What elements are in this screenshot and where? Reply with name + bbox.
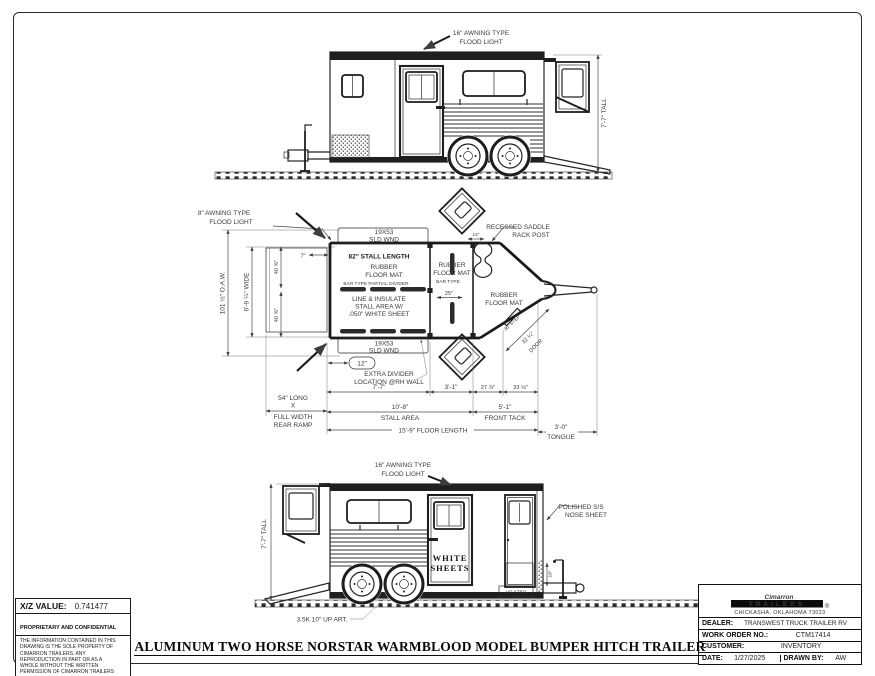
trailer-body-bottom-view: WHITE SHEETS UP STEP (265, 483, 584, 605)
up-step-label: UP STEP (506, 590, 526, 596)
dress-door: WHITE SHEETS (428, 495, 472, 585)
mat2-2: FLOOR MAT (433, 270, 470, 277)
xz-value: 0.741477 (75, 602, 108, 611)
side-door (400, 66, 445, 157)
stall-width-2-label: 40 ⅝" (274, 308, 280, 322)
work-order-row: WORK ORDER NO.: CTM17414 (699, 629, 861, 641)
ramp-label-2: X (291, 403, 296, 410)
drawn-by-label: DRAWN BY: (784, 655, 824, 662)
dim-12-label: 12" (357, 361, 367, 368)
axle-label: 3.5K 10" UP ART. (297, 617, 348, 624)
tall-dim-label: 7'-7" TALL (261, 519, 268, 549)
white-sheets-1: WHITE (433, 553, 468, 563)
confidential-body: THE INFORMATION CONTAINED IN THIS DRAWIN… (16, 636, 124, 676)
mat3-1: RUBBER (490, 292, 517, 299)
customer-row: CUSTOMER: INVENTORY (699, 641, 861, 653)
flood-light-callout: 16" AWNING TYPE FLOOD LIGHT (375, 462, 451, 485)
date-value: 1/27/2025 (723, 655, 777, 662)
brand-address: CHICKASHA, OKLAHOMA 73023 (699, 610, 861, 617)
drawing-title: ALUMINUM TWO HORSE NORSTAR WARMBLOOD MOD… (134, 639, 705, 656)
date-cell: DATE: 1/27/2025 (699, 655, 780, 662)
wide-dim-label: 6'-9 ¼" WIDE (244, 272, 251, 312)
extra-divider-2: LOCATION @RH WALL (354, 379, 424, 386)
tongue-hitch (543, 560, 584, 599)
rear-window (347, 500, 411, 523)
confidential-title: PROPRIETARY AND CONFIDENTIAL (20, 625, 116, 631)
insulate-2: STALL AREA W/ (355, 304, 403, 311)
dim-7-7-label: 7'-7" (373, 384, 387, 391)
plan-flood-label-1: 8" AWNING TYPE (198, 210, 251, 217)
plan-view: 101 ½" O.A.W. 6'-9 ¼" WIDE 40 ⅝" 40 ⅝" 7… (218, 178, 618, 468)
tongue-plan (544, 284, 597, 296)
stall-length-label: 82" STALL LENGTH (349, 254, 410, 261)
wheels (341, 563, 425, 605)
saddle-rack-callout: RECESSED SADDLE RACK POST 14" (468, 224, 550, 241)
plan-flood-label-2: FLOOD LIGHT (209, 219, 252, 226)
stall-area-2: STALL AREA (381, 415, 420, 422)
tongue-label-2: TONGUE (547, 434, 575, 441)
wnd-bottom-2: SLD WND (369, 348, 399, 355)
date-label: DATE: (702, 655, 723, 662)
wnd-bottom-1: 19X53 (375, 341, 394, 348)
mat3-2: FLOOR MAT (485, 300, 522, 307)
rear-window (463, 71, 525, 96)
mat2-1: RUBBER (438, 262, 465, 269)
drawn-by-cell: DRAWN BY: AW (780, 655, 862, 662)
dealer-value: TRANSWEST TRUCK TRAILER RV (733, 620, 858, 627)
length-dimensions: 7'-7" 3'-1" 27 ⅞" 33 ⅛" 54" LONG X FULL … (266, 294, 597, 441)
flood-light-label-2: FLOOD LIGHT (381, 471, 424, 478)
height-dimension: 7'-7" TALL (261, 484, 327, 600)
dim-33-label: 33 ⅛" (513, 385, 527, 391)
date-row: DATE: 1/27/2025 DRAWN BY: AW (699, 652, 861, 664)
tall-dim-label: 7'-7" TALL (601, 98, 608, 128)
saddle-rack-post (474, 243, 492, 278)
door-dim-1: 32 ¼" (521, 331, 536, 345)
dealer-row: DEALER: TRANSWEST TRUCK TRAILER RV (699, 617, 861, 629)
title-block: Cimarron TRAILERS ® CHICKASHA, OKLAHOMA … (698, 584, 862, 665)
slats (330, 530, 427, 566)
ramp-label-3: FULL WIDTH (274, 414, 313, 421)
front-tack-1: 5'-1" (499, 404, 513, 411)
dim-14-label: 14" (472, 232, 479, 238)
dim-3-1-label: 3'-1" (445, 384, 459, 391)
open-door-rear (283, 483, 330, 543)
brand-logo: Cimarron TRAILERS ® (699, 585, 861, 610)
nose-label-1: POLISHED S/S (558, 504, 604, 511)
drawn-by-value: AW (823, 655, 858, 662)
white-sheets-2: SHEETS (430, 563, 469, 573)
oaw-dim-label: 101 ½" O.A.W. (219, 271, 227, 314)
wnd-top-2: SLD WND (369, 237, 399, 244)
hitch-jack (284, 125, 330, 171)
drawing-sheet: 7'-7" TALL 16" AWNING TYPE FLOOD LIGHT 1… (0, 0, 875, 676)
flood-light-label-2: FLOOD LIGHT (459, 39, 502, 46)
brand-sub: TRAILERS (749, 601, 806, 608)
width-dimensions: 101 ½" O.A.W. 6'-9 ¼" WIDE 40 ⅝" 40 ⅝" 7… (219, 230, 341, 356)
wheels (447, 135, 531, 177)
side-view-top: 7'-7" TALL 16" AWNING TYPE FLOOD LIGHT (210, 18, 620, 188)
ramp-label-1: 54" LONG (278, 395, 308, 402)
info-box: X/Z VALUE: 0.741477 PROPRIETARY AND CONF… (15, 598, 131, 676)
mat1-2: FLOOR MAT (365, 272, 402, 279)
stall-area-1: 10'-8" (392, 404, 409, 411)
dim-27-label: 27 ⅞" (481, 385, 495, 391)
insulate-1: LINE & INSULATE (352, 296, 406, 303)
front-window (342, 75, 363, 97)
seven-dim-label: 7" (300, 254, 305, 260)
extra-divider-1: EXTRA DIVIDER (364, 371, 414, 378)
insulate-3: .050" WHITE SHEET (348, 311, 409, 318)
mat1-1: RUBBER (370, 264, 397, 271)
saddle-label-1: RECESSED SADDLE (486, 224, 550, 231)
flood-light-callout-plan: 8" AWNING TYPE FLOOD LIGHT (198, 210, 331, 371)
flood-light-label-1: 16" AWNING TYPE (375, 462, 432, 469)
wnd-top-1: 19X53 (375, 229, 394, 236)
stall-width-1-label: 40 ⅝" (274, 260, 280, 274)
bar-type-label: BAR TYPE (436, 279, 460, 285)
checker-panel (332, 135, 369, 158)
customer-value: INVENTORY (744, 643, 858, 650)
height-dimension: 7'-7" TALL (553, 55, 608, 172)
door-dim-2: DOOR (528, 338, 544, 354)
dim-25-label: 25" (445, 291, 453, 297)
drawing-title-wrap: ALUMINUM TWO HORSE NORSTAR WARMBLOOD MOD… (120, 638, 720, 656)
open-door-diamond-bottom (439, 334, 484, 379)
confidential-title-row: PROPRIETARY AND CONFIDENTIAL (16, 614, 130, 636)
divider-type-label: BAR TYPE PARTIAL DIVIDER (343, 281, 409, 287)
flood-light-callout: 16" AWNING TYPE FLOOD LIGHT (424, 30, 510, 49)
front-tack-2: FRONT TACK (485, 415, 526, 422)
floor-length-label: 15'-9" FLOOR LENGTH (399, 428, 468, 435)
nose-label-2: NOSE SHEET (565, 512, 607, 519)
open-door-diamond-top (439, 188, 484, 233)
flood-light-label-1: 16" AWNING TYPE (453, 30, 510, 37)
open-door-rear (544, 58, 589, 112)
tongue-label-1: 3'-0" (555, 424, 569, 431)
saddle-label-2: RACK POST (512, 232, 550, 239)
registered-mark: ® (825, 602, 830, 610)
work-order-value: CTM17414 (768, 632, 858, 639)
nose-sheet-callout: POLISHED S/S NOSE SHEET (547, 504, 607, 520)
front-door (505, 495, 535, 587)
xz-value-row: X/Z VALUE: 0.741477 (16, 599, 130, 614)
trailer-body-top-view (284, 52, 610, 177)
dealer-label: DEALER: (702, 620, 733, 627)
brand-name: Cimarron (765, 594, 794, 601)
dim-18-label: 18" (548, 570, 554, 577)
xz-value-label: X/Z VALUE: (20, 601, 67, 611)
rear-ramp (544, 156, 610, 174)
ramp-label-4: REAR RAMP (274, 422, 313, 429)
